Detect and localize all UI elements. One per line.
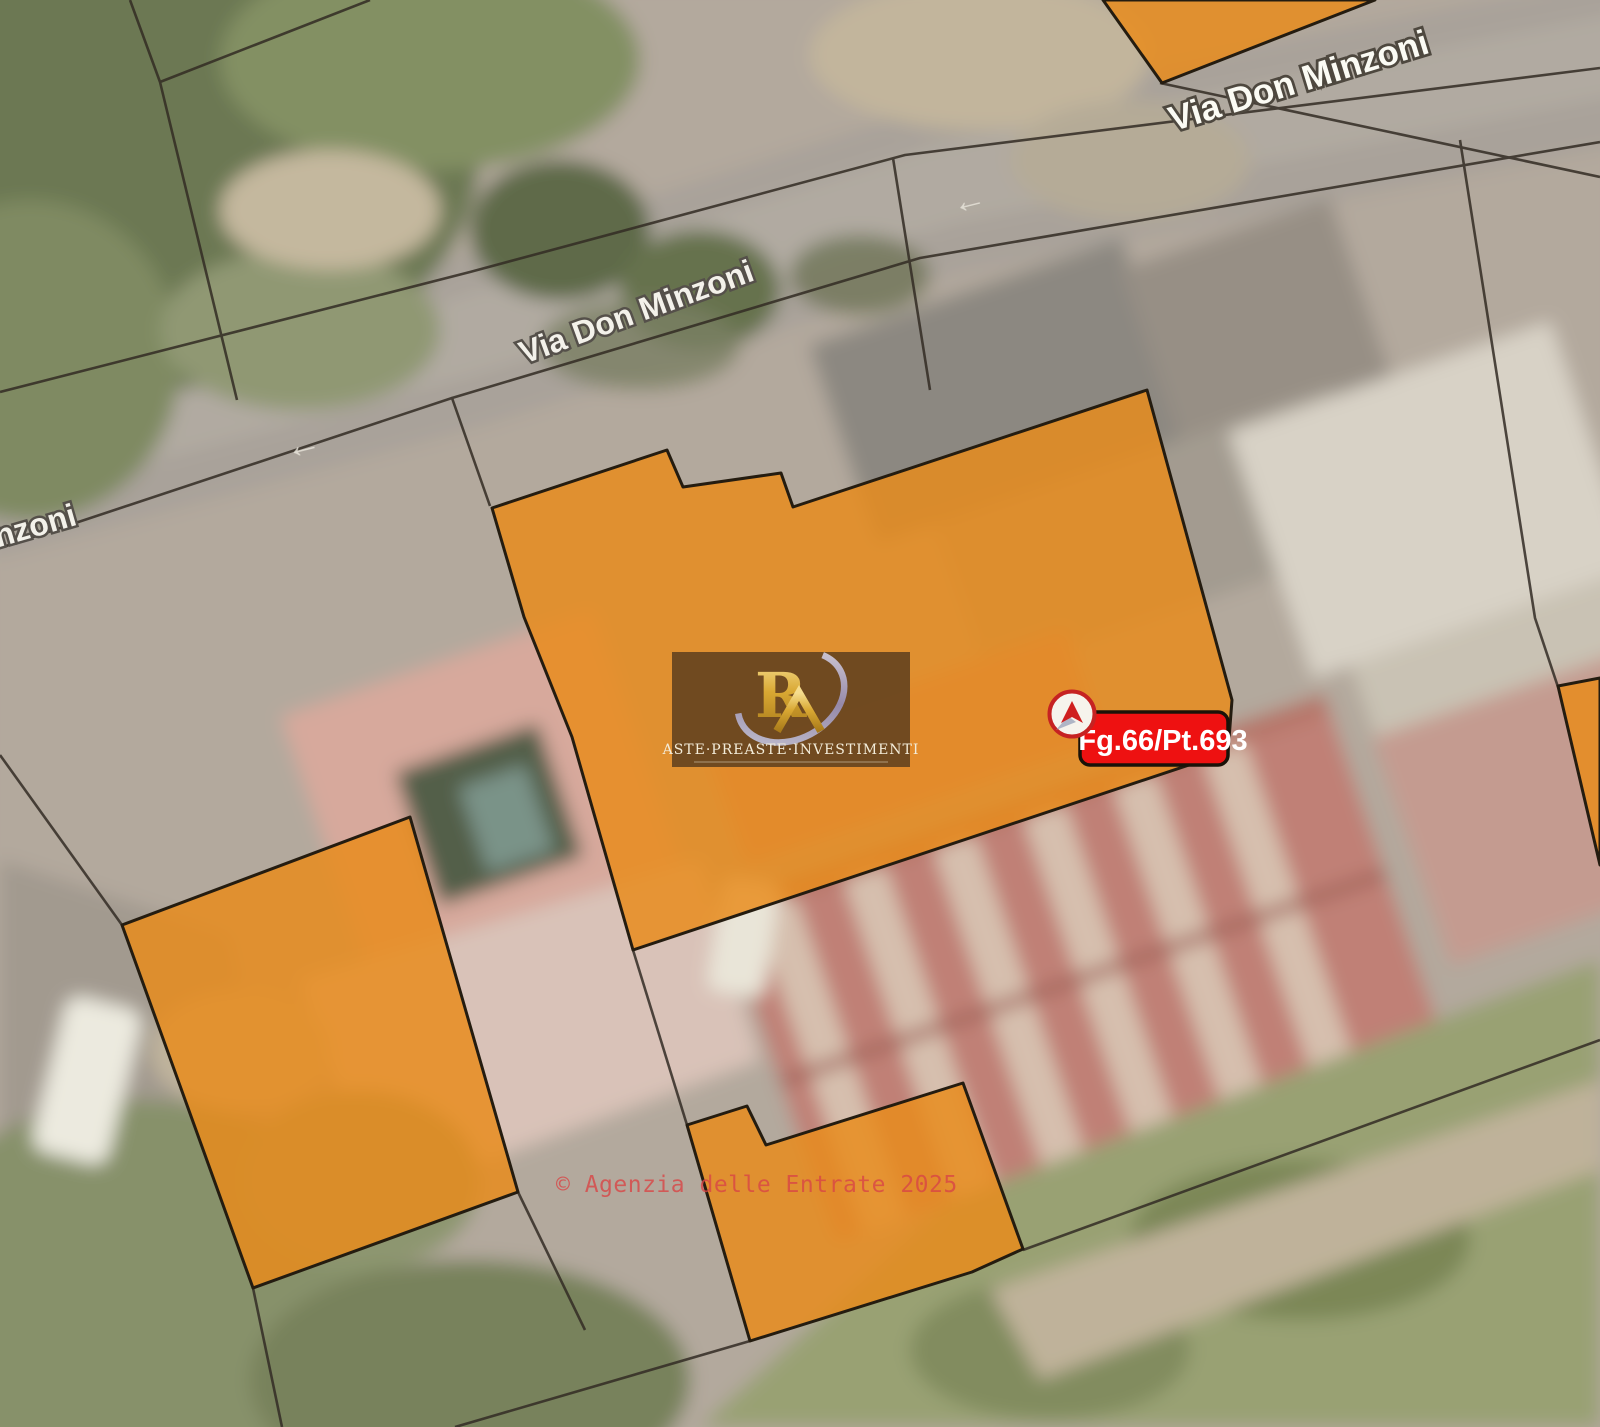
parcel-label-text: Fg.66/Pt.693 — [1078, 725, 1247, 757]
map-viewport: Via Don Minzoni Via Don Minzoni nzoni ← … — [0, 0, 1600, 1427]
watermark-logo: R ASTE·PREASTE·INVESTIMENTI — [662, 634, 920, 767]
cadastral-map: Via Don Minzoni Via Don Minzoni nzoni ← … — [0, 0, 1600, 1427]
copyright-text: © Agenzia delle Entrate 2025 — [556, 1172, 958, 1198]
watermark-brand-text: ASTE·PREASTE·INVESTIMENTI — [662, 742, 920, 758]
parcel-marker-icon[interactable] — [1050, 692, 1095, 737]
